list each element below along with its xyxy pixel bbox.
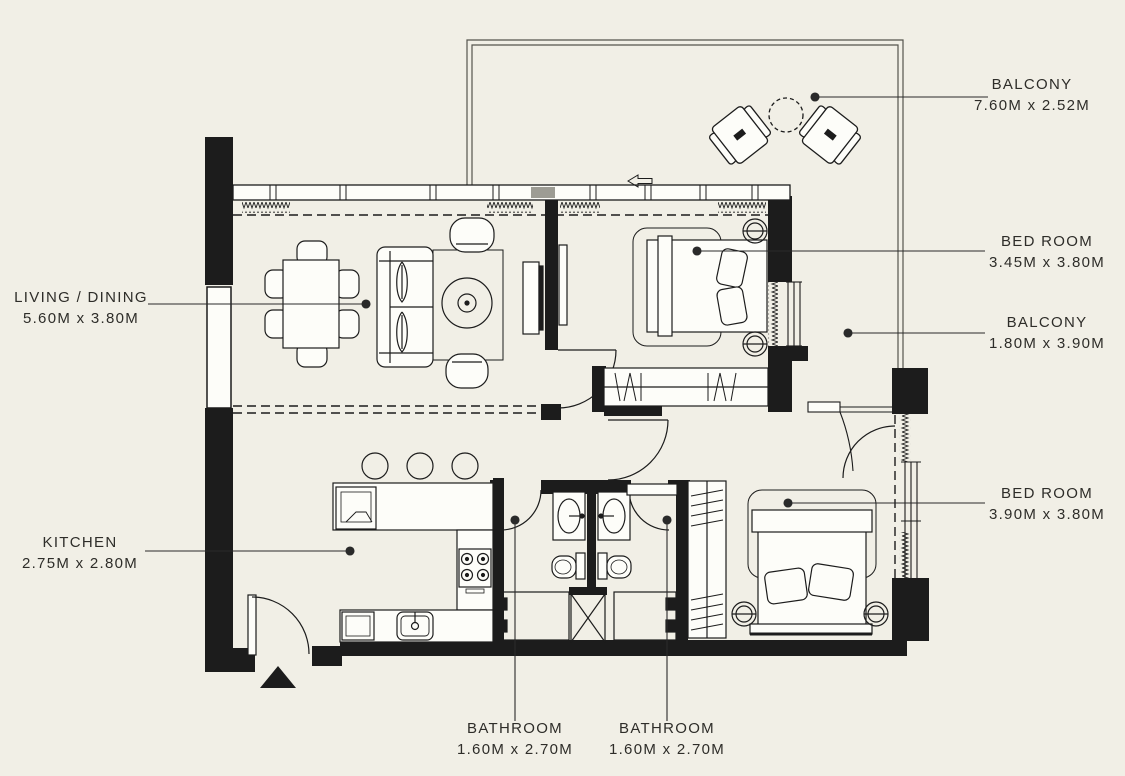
room-label-kitchen: KITCHEN 2.75M x 2.80M — [10, 532, 150, 574]
kitchen-sink — [397, 612, 433, 640]
room-dims: 3.90M x 3.80M — [972, 504, 1122, 525]
bathroom-1-fixtures — [497, 492, 585, 640]
bedroom1-balcony-window — [768, 282, 802, 346]
room-name: BATHROOM — [467, 720, 563, 737]
toilet-1 — [552, 553, 585, 579]
wardrobe-bedroom1 — [604, 368, 768, 406]
room-dims: 7.60M x 2.52M — [952, 95, 1112, 116]
room-dims: 3.45M x 3.80M — [972, 252, 1122, 273]
bed-2-pillow — [764, 567, 808, 604]
room-name: BED ROOM — [1001, 233, 1093, 250]
room-name: BALCONY — [992, 76, 1073, 93]
room-name: LIVING / DINING — [14, 289, 148, 306]
fridge — [336, 487, 376, 529]
balcony-chair — [705, 101, 774, 169]
bathroom-shelf — [627, 484, 677, 495]
bed-2-pillow — [808, 563, 854, 601]
bedside-lamp — [864, 602, 888, 626]
bedroom2-window — [899, 414, 921, 580]
living-dining-furniture — [265, 218, 567, 388]
toilet-2 — [598, 553, 631, 579]
stove — [459, 549, 491, 593]
bedside-lamp — [743, 219, 767, 243]
bedroom-1-furniture — [633, 219, 767, 356]
left-wall-white-segment — [207, 287, 231, 408]
bed-1-bench — [658, 236, 672, 336]
kitchen-furniture — [333, 453, 493, 642]
room-dims: 1.80M x 3.90M — [972, 333, 1122, 354]
bathroom-2-fixtures — [598, 484, 677, 640]
room-label-bedroom-1: BED ROOM 3.45M x 3.80M — [972, 231, 1122, 273]
sliding-door — [531, 187, 555, 198]
room-name: KITCHEN — [43, 534, 118, 551]
balcony-chair — [795, 101, 864, 169]
vanity-sink-2 — [598, 492, 630, 540]
sofa — [377, 247, 433, 367]
dishwasher — [342, 612, 374, 640]
vanity-sink-1 — [553, 492, 585, 540]
tv — [539, 266, 543, 330]
balcony-right-rail — [808, 402, 895, 471]
tv-console — [523, 262, 539, 334]
shower-1 — [497, 592, 569, 640]
room-label-bedroom-2: BED ROOM 3.90M x 3.80M — [972, 483, 1122, 525]
room-label-living-dining: LIVING / DINING 5.60M x 3.80M — [5, 287, 157, 329]
room-label-balcony-top: BALCONY 7.60M x 2.52M — [952, 74, 1112, 116]
balcony-top-furniture — [705, 98, 864, 169]
insulation-bands — [242, 202, 766, 213]
armchair-bottom — [446, 354, 488, 388]
service-shaft — [571, 594, 605, 642]
window-band — [233, 185, 790, 200]
bar-stools — [362, 453, 478, 479]
room-label-balcony-right: BALCONY 1.80M x 3.90M — [972, 312, 1122, 354]
floor-plan-page: BALCONY 7.60M x 2.52M BED ROOM 3.45M x 3… — [0, 0, 1125, 776]
room-name: BALCONY — [1007, 314, 1088, 331]
room-label-bathroom-1: BATHROOM 1.60M x 2.70M — [444, 718, 586, 760]
bedroom-2-furniture — [732, 490, 888, 634]
room-dims: 5.60M x 3.80M — [5, 308, 157, 329]
armchair-top — [450, 218, 494, 252]
bed-2-foot-bar — [752, 510, 872, 532]
room-dims: 1.60M x 2.70M — [444, 739, 586, 760]
room-name: BED ROOM — [1001, 485, 1093, 502]
room-dims: 2.75M x 2.80M — [10, 553, 150, 574]
wardrobe-bedroom2 — [688, 481, 726, 638]
bedside-lamp — [732, 602, 756, 626]
room-dims: 1.60M x 2.70M — [596, 739, 738, 760]
floor-plan-drawing — [0, 0, 1125, 776]
balcony-table — [769, 98, 803, 132]
room-name: BATHROOM — [619, 720, 715, 737]
bedroom1-dresser — [559, 245, 567, 325]
coffee-table — [442, 278, 492, 328]
entry-arrow — [260, 666, 296, 688]
bed-1-pillow — [716, 286, 748, 326]
bedside-lamp — [743, 332, 767, 356]
room-label-bathroom-2: BATHROOM 1.60M x 2.70M — [596, 718, 738, 760]
